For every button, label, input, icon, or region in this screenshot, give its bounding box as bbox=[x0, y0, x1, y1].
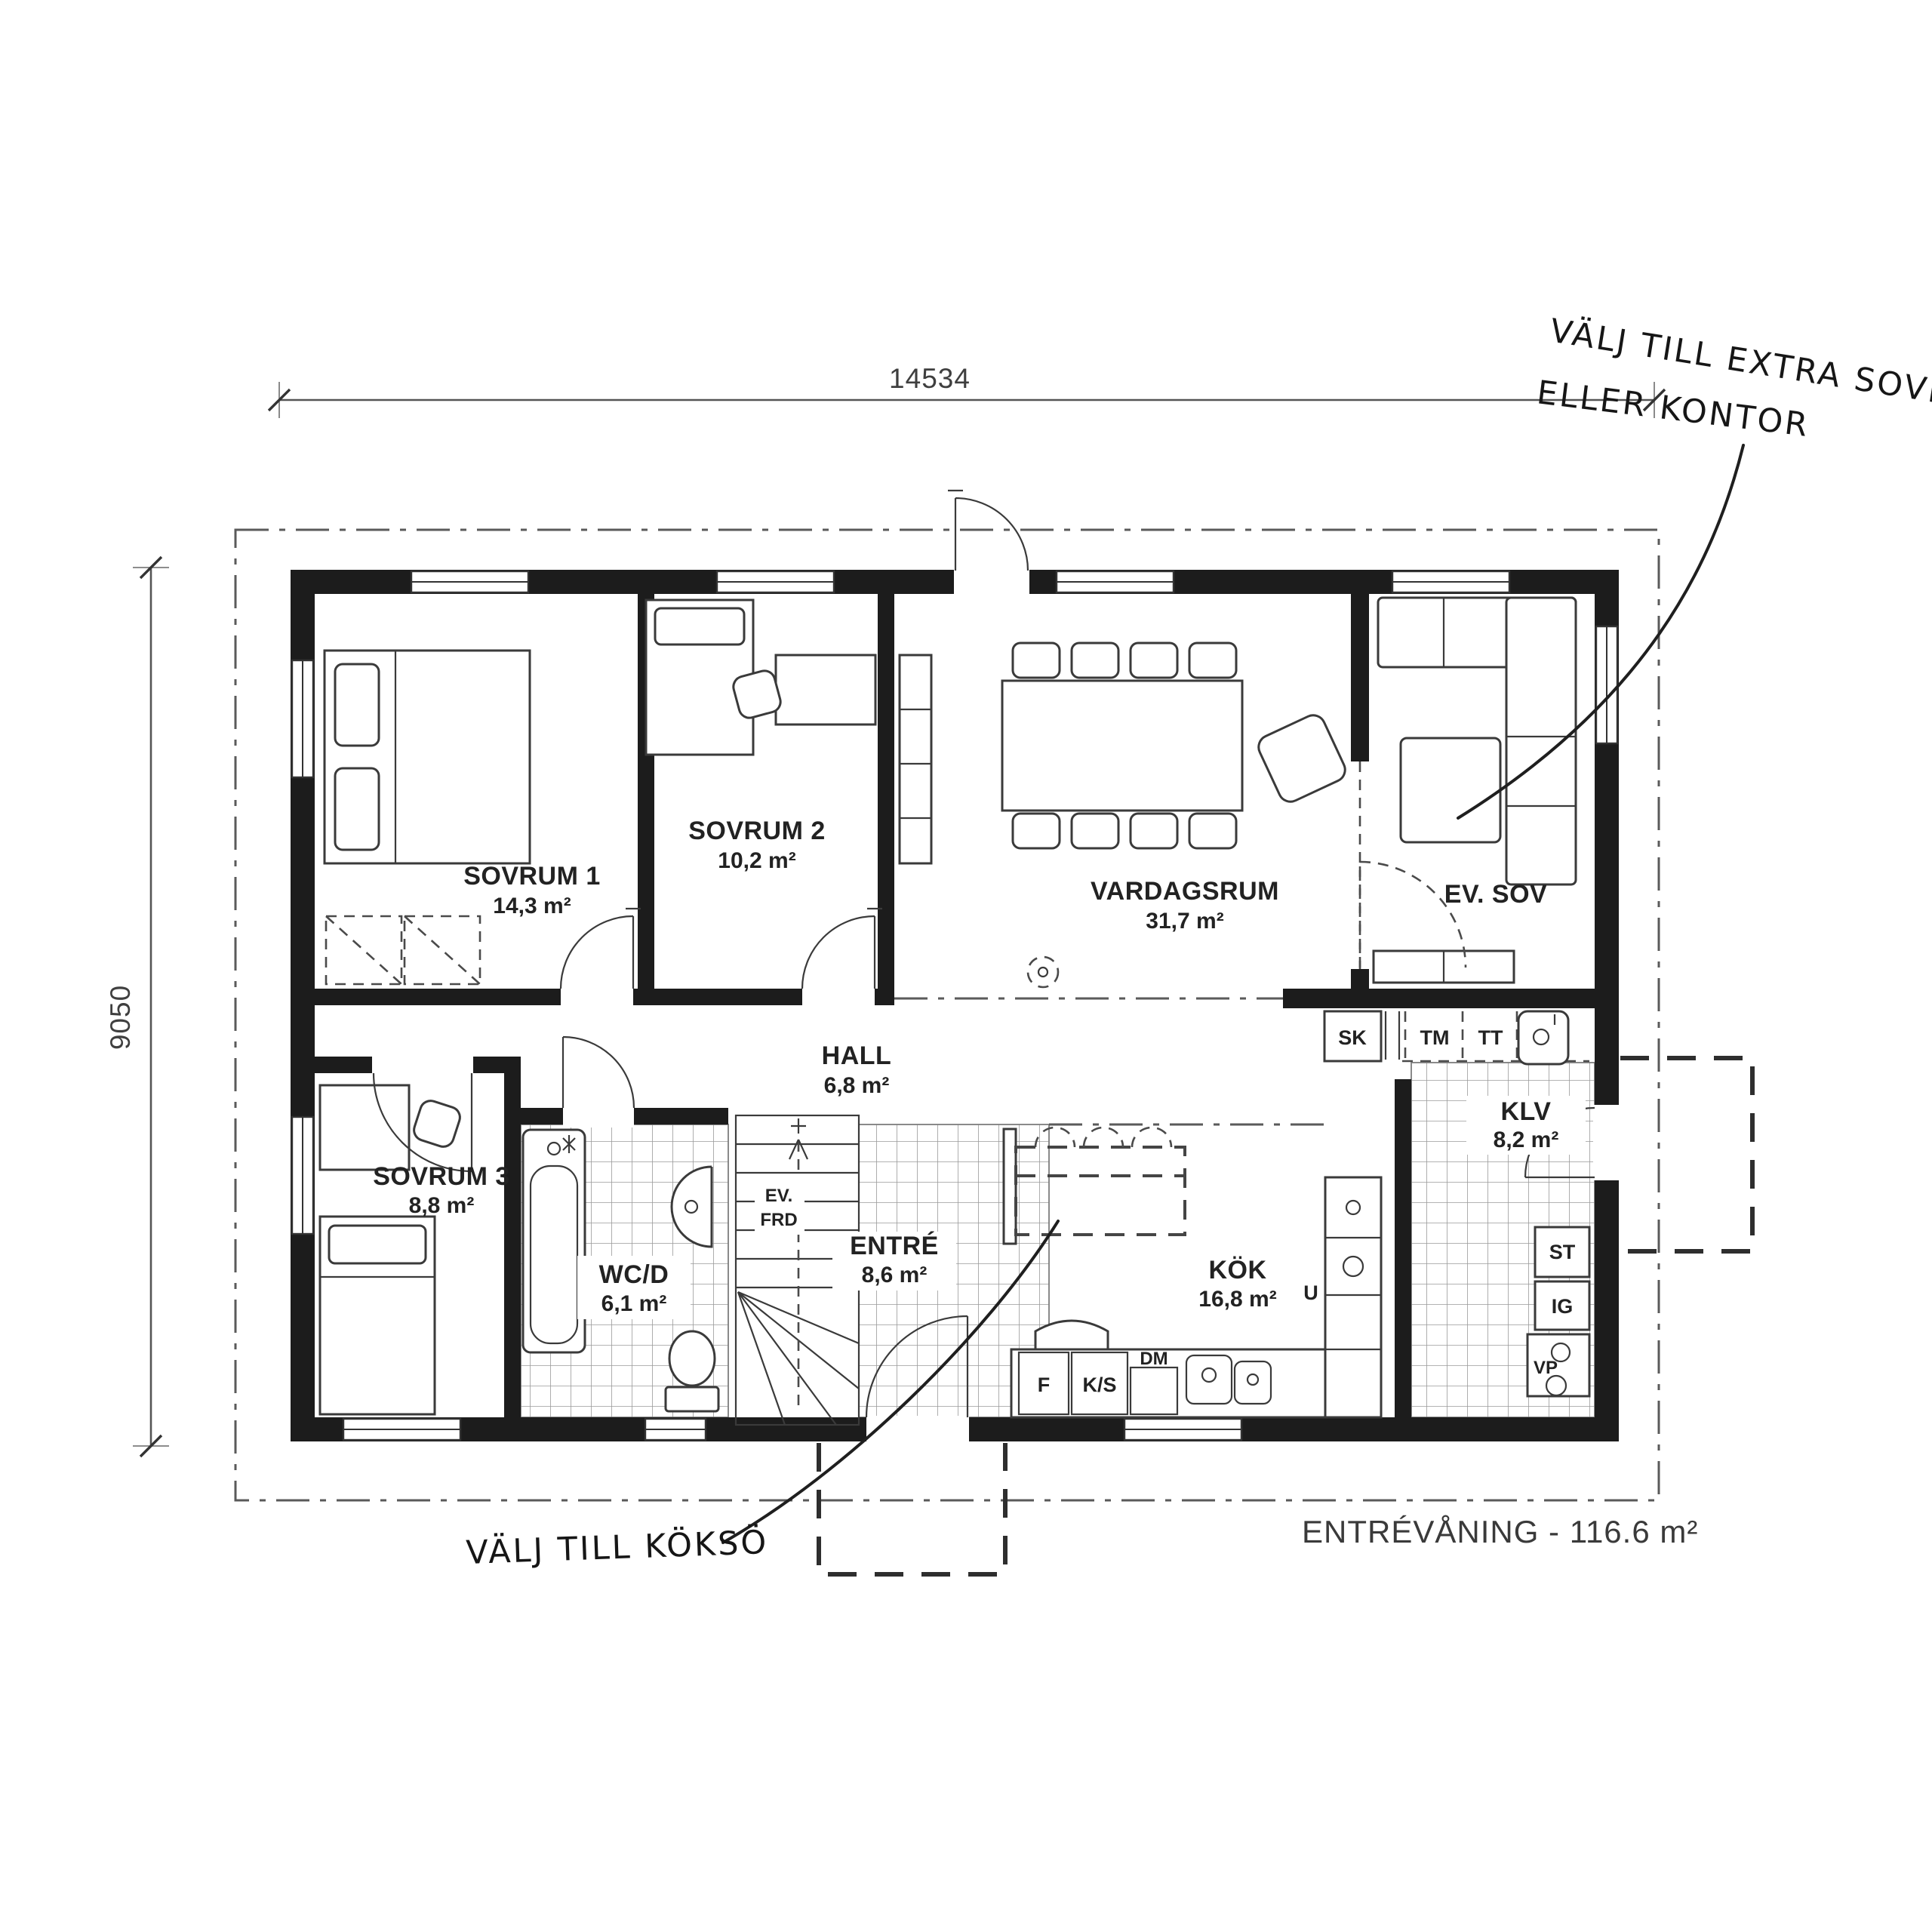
label-f: F bbox=[1038, 1374, 1051, 1396]
label-sovrum1: SOVRUM 1 bbox=[463, 862, 601, 891]
area-vardagsrum: 31,7 m² bbox=[1146, 909, 1223, 934]
hood bbox=[1035, 1321, 1108, 1349]
counter bbox=[1011, 1349, 1325, 1417]
ceiling-point bbox=[1028, 957, 1058, 987]
label-ks: K/S bbox=[1082, 1374, 1116, 1396]
label-wcd: WC/D bbox=[599, 1260, 669, 1289]
area-wcd: 6,1 m² bbox=[601, 1291, 667, 1316]
label-evfrd-1: EV. bbox=[765, 1186, 792, 1206]
sovrum1-furniture bbox=[325, 651, 530, 984]
label-kok: KÖK bbox=[1208, 1256, 1266, 1284]
area-entre: 8,6 m² bbox=[862, 1263, 928, 1287]
label-entre: ENTRÉ bbox=[850, 1232, 939, 1260]
area-sovrum1: 14,3 m² bbox=[493, 894, 571, 918]
toilet bbox=[666, 1387, 718, 1411]
label-sovrum3: SOVRUM 3 bbox=[373, 1162, 510, 1191]
armchair bbox=[1255, 712, 1349, 806]
tall-units bbox=[1325, 1177, 1381, 1417]
annotation-koksoe: VÄLJ TILL KÖKSÖ bbox=[466, 1523, 769, 1572]
evsov-furniture bbox=[1255, 598, 1576, 983]
area-sovrum3: 8,8 m² bbox=[409, 1193, 475, 1218]
area-sovrum2: 10,2 m² bbox=[718, 848, 795, 873]
label-st: ST bbox=[1549, 1241, 1576, 1263]
label-vardagsrum: VARDAGSRUM bbox=[1091, 877, 1279, 906]
floorplan-page: 14534 9050 bbox=[0, 0, 1932, 1932]
side-porch bbox=[1620, 1058, 1752, 1251]
label-ig: IG bbox=[1552, 1295, 1574, 1318]
kitchen-fixtures bbox=[1004, 1128, 1381, 1417]
label-hall: HALL bbox=[822, 1041, 892, 1070]
sovrum3-furniture bbox=[320, 1085, 463, 1414]
label-vp: VP bbox=[1534, 1358, 1558, 1378]
bathtub bbox=[523, 1130, 585, 1352]
dimension-width-label: 14534 bbox=[889, 363, 971, 394]
closet-dashed bbox=[326, 916, 401, 984]
dining-table bbox=[1002, 681, 1242, 811]
dimension-left: 9050 bbox=[105, 557, 169, 1457]
label-tm: TM bbox=[1420, 1026, 1450, 1049]
label-sk: SK bbox=[1338, 1026, 1367, 1049]
bar-stool bbox=[1132, 1128, 1171, 1147]
label-sovrum2: SOVRUM 2 bbox=[688, 817, 826, 845]
area-hall: 6,8 m² bbox=[824, 1073, 890, 1098]
floor-title: ENTRÉVÅNING - 116.6 m² bbox=[1302, 1514, 1698, 1549]
label-tt: TT bbox=[1478, 1026, 1503, 1049]
dimension-top: 14534 bbox=[269, 363, 1665, 418]
area-klv: 8,2 m² bbox=[1494, 1128, 1559, 1152]
coffee-table bbox=[1401, 738, 1500, 842]
area-kok: 16,8 m² bbox=[1198, 1287, 1276, 1312]
sovrum2-furniture bbox=[646, 600, 875, 755]
closet-dashed bbox=[405, 916, 480, 984]
desk-chair bbox=[411, 1098, 463, 1149]
floorplan-drawing: 14534 9050 bbox=[0, 0, 1932, 1932]
label-u: U bbox=[1303, 1281, 1318, 1304]
label-evfrd-2: FRD bbox=[760, 1210, 797, 1230]
label-dm: DM bbox=[1140, 1349, 1168, 1369]
label-evsov: EV. SOV bbox=[1444, 880, 1547, 909]
entry-porch bbox=[819, 1443, 1005, 1574]
dimension-height-label: 9050 bbox=[105, 985, 136, 1050]
label-klv: KLV bbox=[1501, 1097, 1552, 1126]
bar-stool bbox=[1084, 1128, 1123, 1147]
vardagsrum-furniture bbox=[900, 643, 1242, 987]
laundry-sink bbox=[1518, 1011, 1568, 1064]
